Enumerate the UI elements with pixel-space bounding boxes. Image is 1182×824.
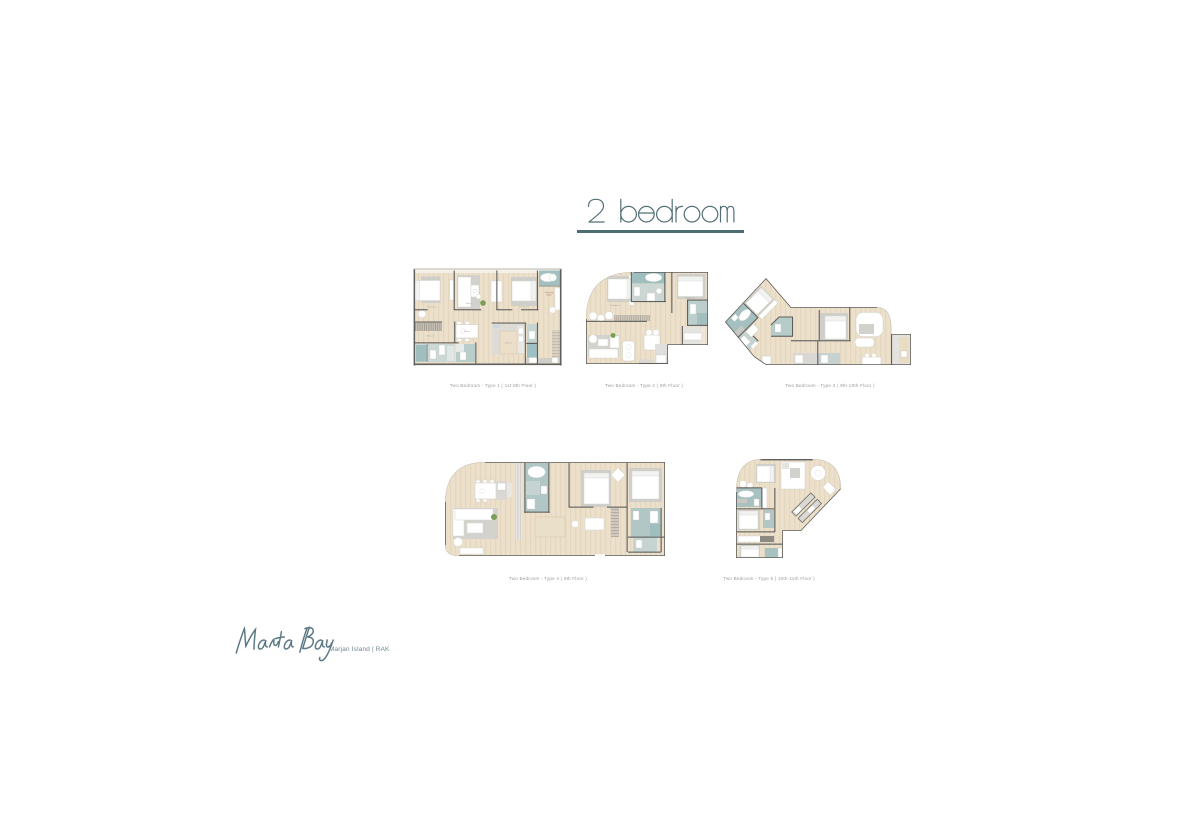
svg-text:Sitting: Sitting xyxy=(465,302,472,305)
svg-text:Dressing: Dressing xyxy=(545,291,554,294)
svg-text:Room: Room xyxy=(546,295,552,297)
svg-text:Bedroom: Bedroom xyxy=(611,304,620,307)
svg-text:Bedroom: Bedroom xyxy=(686,297,695,300)
svg-text:Bedroom: Bedroom xyxy=(520,306,529,309)
svg-text:Bedroom: Bedroom xyxy=(428,306,437,309)
svg-text:Kitchen: Kitchen xyxy=(505,342,513,345)
svg-text:Dining: Dining xyxy=(464,331,471,333)
svg-text:Walk-in: Walk-in xyxy=(426,336,434,338)
svg-text:Marjan Island | RAK: Marjan Island | RAK xyxy=(329,646,390,653)
